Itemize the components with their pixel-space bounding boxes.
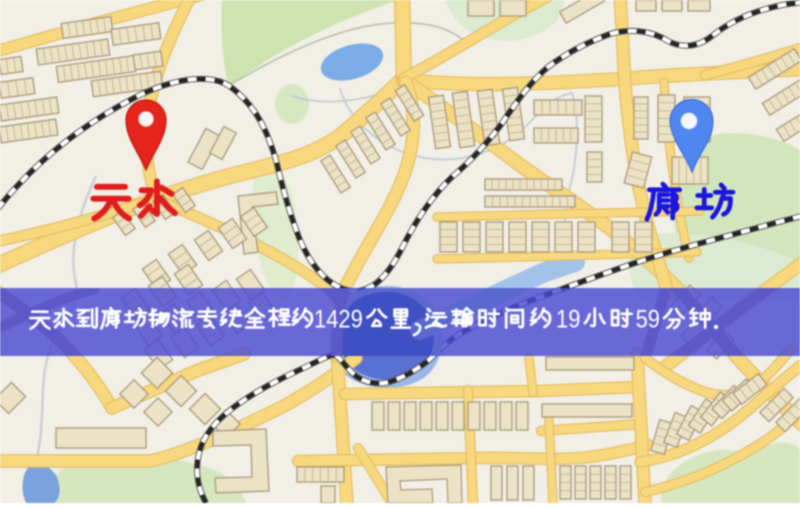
svg-text:1429: 1429 (314, 306, 363, 334)
svg-text:19: 19 (556, 306, 580, 334)
svg-text:59: 59 (636, 306, 660, 334)
